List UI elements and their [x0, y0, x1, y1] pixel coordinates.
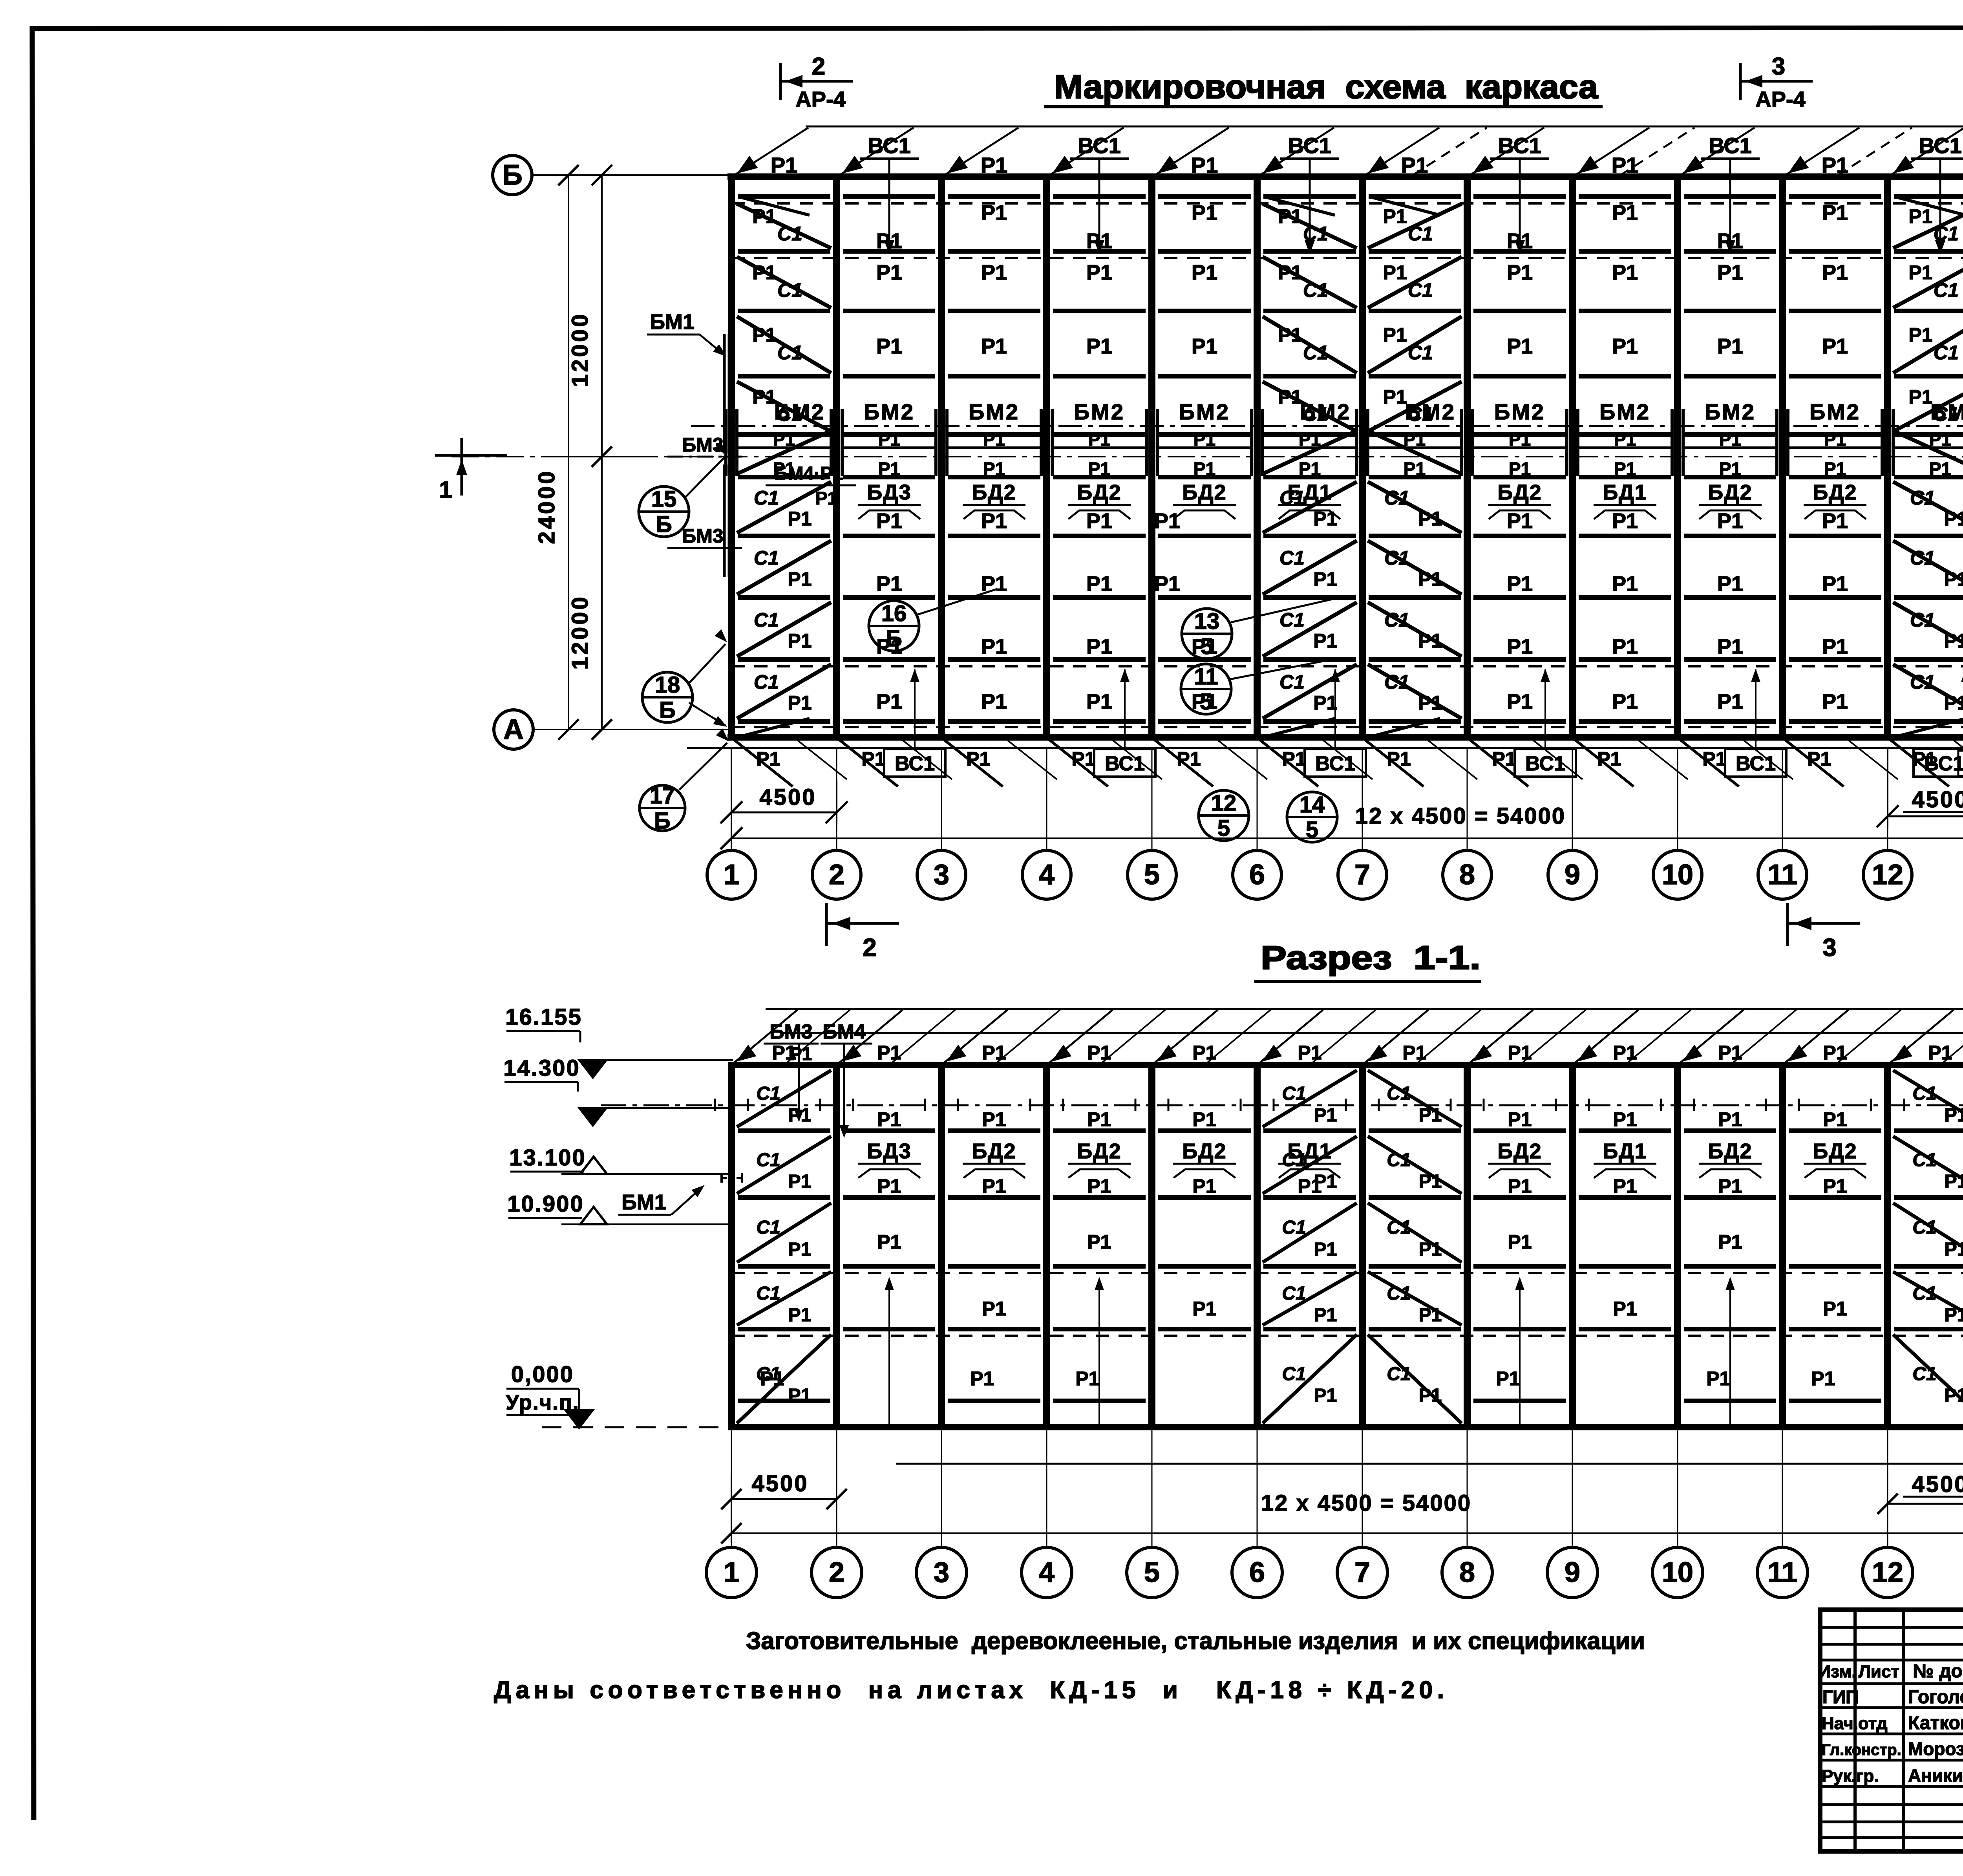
svg-text:БД2: БД2	[1813, 1139, 1857, 1163]
svg-text:ВС1: ВС1	[1315, 752, 1355, 775]
svg-text:7: 7	[1354, 1557, 1370, 1588]
svg-text:Р1: Р1	[1419, 1239, 1442, 1260]
svg-text:Р1: Р1	[1313, 630, 1337, 652]
svg-text:С1: С1	[1384, 547, 1409, 569]
svg-text:Р1: Р1	[1822, 201, 1848, 225]
svg-text:Р1: Р1	[1418, 692, 1442, 714]
svg-text:С1: С1	[1408, 279, 1433, 301]
svg-text:Гоголев: Гоголев	[1908, 1687, 1963, 1708]
svg-text:8: 8	[1459, 1557, 1475, 1588]
svg-text:Р1: Р1	[1507, 261, 1533, 284]
svg-text:БМ2: БМ2	[1179, 399, 1230, 424]
svg-text:Р1: Р1	[1404, 429, 1426, 450]
svg-text:Р1: Р1	[1087, 1175, 1111, 1197]
svg-text:Р1: Р1	[1507, 335, 1533, 358]
svg-text:БД2: БД2	[972, 1139, 1016, 1163]
svg-text:Р1: Р1	[1945, 1385, 1963, 1406]
svg-text:Р1: Р1	[1509, 459, 1531, 479]
svg-text:С1: С1	[1279, 671, 1305, 693]
svg-text:С1: С1	[1384, 487, 1409, 509]
svg-text:БД3: БД3	[867, 481, 911, 504]
svg-text:Р1: Р1	[983, 459, 1005, 479]
svg-text:Р1: Р1	[1419, 1305, 1442, 1326]
svg-text:Р1: Р1	[1419, 1105, 1442, 1126]
svg-text:Р1: Р1	[1706, 1368, 1730, 1390]
svg-text:С1: С1	[754, 671, 779, 693]
svg-text:17: 17	[650, 783, 675, 808]
svg-text:С1: С1	[1387, 1364, 1411, 1384]
svg-text:Р1: Р1	[1192, 1042, 1216, 1064]
svg-text:А: А	[503, 714, 524, 745]
svg-text:ВС1: ВС1	[1078, 133, 1121, 158]
svg-text:Р1: Р1	[1614, 429, 1636, 450]
svg-text:Р1: Р1	[1719, 429, 1741, 450]
svg-text:4500: 4500	[1912, 1472, 1963, 1497]
svg-text:ВС1: ВС1	[1709, 133, 1752, 158]
svg-text:С1: С1	[1408, 223, 1433, 245]
svg-text:Р1: Р1	[1192, 1108, 1216, 1130]
svg-text:Р1: Р1	[1612, 261, 1638, 284]
svg-text:С1: С1	[1384, 609, 1409, 631]
svg-text:Р1: Р1	[1313, 568, 1337, 590]
svg-text:15: 15	[651, 486, 677, 512]
svg-text:Р1: Р1	[1908, 386, 1932, 408]
svg-text:4500: 4500	[759, 784, 816, 810]
svg-text:Р1: Р1	[1718, 1042, 1742, 1064]
svg-text:ВС1: ВС1	[1105, 752, 1145, 775]
svg-text:Р1: Р1	[1508, 1231, 1532, 1253]
svg-text:С1: С1	[1934, 279, 1959, 301]
svg-text:С1: С1	[1934, 223, 1959, 245]
svg-text:Р1: Р1	[1419, 1385, 1442, 1406]
svg-text:С1: С1	[1303, 342, 1328, 364]
svg-text:2: 2	[863, 933, 877, 962]
svg-text:Р1: Р1	[1508, 1108, 1532, 1130]
svg-text:Р1: Р1	[752, 324, 776, 346]
svg-text:Р1: Р1	[1192, 335, 1217, 358]
svg-text:Р1: Р1	[876, 229, 902, 253]
svg-text:БМ2: БМ2	[1705, 399, 1756, 424]
svg-text:Р1: Р1	[1944, 630, 1963, 652]
svg-text:С1: С1	[1282, 1364, 1306, 1384]
svg-text:Р1: Р1	[788, 568, 812, 590]
svg-text:Р1: Р1	[1719, 459, 1741, 479]
svg-text:Р1: Р1	[1929, 459, 1951, 479]
svg-text:БМ3: БМ3	[769, 1020, 813, 1043]
svg-text:Р1: Р1	[1086, 509, 1112, 533]
svg-text:БД3: БД3	[867, 1139, 911, 1163]
svg-text:Р1: Р1	[1824, 459, 1846, 479]
svg-text:Р1: Р1	[1387, 748, 1411, 770]
svg-text:Р1: Р1	[878, 459, 900, 479]
svg-text:3: 3	[934, 1557, 949, 1588]
svg-text:БД1: БД1	[1603, 481, 1647, 504]
svg-text:Р1: Р1	[876, 572, 902, 596]
svg-text:Р1: Р1	[1823, 1108, 1847, 1130]
svg-text:Р1: Р1	[1928, 1042, 1952, 1064]
svg-text:Р1: Р1	[1717, 690, 1743, 713]
svg-text:2: 2	[829, 1557, 844, 1588]
svg-text:С1: С1	[777, 223, 802, 245]
svg-text:8: 8	[1459, 859, 1475, 890]
svg-text:Р1: Р1	[1717, 635, 1743, 658]
svg-text:Р1: Р1	[1192, 261, 1217, 284]
svg-text:Гл.констр.: Гл.констр.	[1822, 1741, 1901, 1759]
svg-text:Р1: Р1	[1313, 692, 1337, 714]
svg-text:Р1: Р1	[752, 386, 776, 408]
svg-text:9: 9	[1565, 1557, 1580, 1588]
svg-text:БМ2: БМ2	[1494, 399, 1545, 424]
svg-text:Р1: Р1	[982, 1298, 1006, 1320]
svg-text:14: 14	[1300, 792, 1325, 817]
svg-text:3: 3	[934, 859, 949, 890]
svg-text:Нач.отд: Нач.отд	[1822, 1714, 1888, 1733]
svg-text:С1: С1	[1387, 1217, 1411, 1238]
svg-text:Р1: Р1	[1807, 748, 1831, 770]
svg-text:Р1: Р1	[1507, 690, 1533, 713]
svg-text:Р1: Р1	[1299, 459, 1321, 479]
svg-text:С1: С1	[1279, 547, 1305, 569]
svg-text:Р1: Р1	[981, 509, 1007, 533]
svg-text:Р1: Р1	[1612, 335, 1638, 358]
svg-text:БД2: БД2	[1077, 1139, 1121, 1163]
svg-text:Р1: Р1	[1597, 748, 1621, 770]
svg-text:11: 11	[1194, 664, 1218, 689]
svg-text:10.900: 10.900	[507, 1191, 584, 1217]
svg-text:С1: С1	[1912, 1364, 1936, 1384]
svg-text:БМ2: БМ2	[1405, 399, 1456, 424]
svg-text:3: 3	[1772, 53, 1785, 80]
svg-text:12: 12	[1872, 859, 1903, 890]
svg-text:5: 5	[1306, 817, 1318, 843]
svg-text:Р1: Р1	[861, 748, 885, 770]
svg-text:С1: С1	[1912, 1217, 1936, 1238]
svg-text:Изм.: Изм.	[1818, 1662, 1856, 1681]
svg-text:Б: Б	[654, 808, 671, 834]
svg-text:Аникин: Аникин	[1908, 1765, 1963, 1786]
svg-text:Р1: Р1	[1314, 1239, 1337, 1260]
svg-text:Р1: Р1	[1086, 261, 1112, 284]
svg-text:Р1: Р1	[1717, 261, 1743, 284]
svg-text:Р1: Р1	[1944, 508, 1963, 530]
svg-text:Р1: Р1	[1086, 335, 1112, 358]
svg-text:Р1: Р1	[1278, 261, 1302, 283]
svg-text:Б: Б	[656, 512, 672, 537]
svg-text:Заготовительные деревоклееные: Заготовительные деревоклееные, стальные …	[746, 1627, 1645, 1655]
svg-text:3: 3	[1822, 933, 1837, 962]
svg-text:Р1: Р1	[788, 508, 812, 530]
svg-text:10: 10	[1662, 1557, 1693, 1588]
svg-text:Р1: Р1	[1314, 1385, 1337, 1406]
svg-text:Р1: Р1	[982, 1042, 1006, 1064]
svg-text:Р1: Р1	[1071, 748, 1095, 770]
svg-text:12: 12	[1872, 1557, 1903, 1588]
svg-text:7: 7	[1354, 859, 1370, 890]
svg-text:БМ2: БМ2	[1074, 399, 1125, 424]
svg-text:Р1: Р1	[1383, 386, 1407, 408]
svg-text:12 х 4500 = 54000: 12 х 4500 = 54000	[1261, 1490, 1471, 1516]
svg-text:Р1: Р1	[1823, 1175, 1847, 1197]
svg-text:Р1: Р1	[876, 509, 902, 533]
svg-text:С1: С1	[1279, 609, 1305, 631]
svg-text:БД1: БД1	[1287, 481, 1332, 504]
svg-text:18: 18	[655, 672, 680, 698]
svg-text:12000: 12000	[567, 312, 593, 387]
svg-text:Р1: Р1	[1945, 1171, 1963, 1192]
svg-text:БД2: БД2	[1182, 481, 1226, 504]
svg-text:С1: С1	[1282, 1083, 1306, 1104]
svg-text:Р1: Р1	[788, 630, 812, 652]
svg-text:Р1: Р1	[1824, 429, 1846, 450]
svg-text:Р1: Р1	[1908, 324, 1932, 346]
svg-text:Разрез 1-1.: Разрез 1-1.	[1261, 939, 1480, 976]
svg-text:Р1: Р1	[1418, 508, 1442, 530]
svg-text:Р1: Р1	[1088, 429, 1110, 450]
svg-text:Р1: Р1	[1613, 1108, 1637, 1130]
svg-text:Р1: Р1	[760, 1368, 784, 1390]
svg-text:Р1: Р1	[1496, 1368, 1520, 1390]
svg-text:Р1: Р1	[1613, 1298, 1637, 1320]
svg-text:С1: С1	[1912, 1150, 1936, 1170]
svg-text:Р1: Р1	[1192, 201, 1217, 225]
svg-text:ВС1: ВС1	[1498, 133, 1541, 158]
svg-text:ВС1: ВС1	[1924, 752, 1963, 775]
svg-text:Р1: Р1	[1717, 572, 1743, 596]
svg-text:Р1: Р1	[1278, 324, 1302, 346]
svg-text:Р1: Р1	[1613, 1042, 1637, 1064]
svg-text:Р1: Р1	[1507, 509, 1533, 533]
svg-text:Р1: Р1	[981, 635, 1007, 658]
svg-text:Р1: Р1	[877, 1042, 901, 1064]
svg-text:6: 6	[1249, 1557, 1265, 1588]
svg-text:Р1: Р1	[1087, 1231, 1111, 1253]
svg-text:Р1: Р1	[1192, 1175, 1216, 1197]
svg-text:13.100: 13.100	[509, 1145, 586, 1170]
svg-text:Р1: Р1	[752, 205, 776, 227]
svg-text:БМ4·Р1: БМ4·Р1	[774, 463, 843, 484]
svg-text:БД1: БД1	[1287, 1139, 1332, 1163]
svg-text:Р1: Р1	[1086, 635, 1112, 658]
svg-text:Р1: Р1	[1418, 630, 1442, 652]
svg-text:Р1: Р1	[877, 1175, 901, 1197]
svg-text:С1: С1	[754, 609, 779, 631]
svg-text:Р1: Р1	[1507, 635, 1533, 658]
svg-text:Р1: Р1	[1944, 692, 1963, 714]
svg-text:Р1: Р1	[1822, 335, 1848, 358]
svg-text:БМ3: БМ3	[682, 434, 723, 456]
svg-text:Р1: Р1	[1945, 1105, 1963, 1126]
svg-text:24000: 24000	[534, 469, 559, 544]
svg-text:С1: С1	[1384, 671, 1409, 693]
svg-text:С1: С1	[1387, 1283, 1411, 1304]
svg-text:16: 16	[881, 601, 907, 626]
svg-text:Р1: Р1	[1299, 429, 1321, 450]
svg-text:Р1: Р1	[1908, 261, 1932, 283]
svg-text:БМ3: БМ3	[682, 525, 723, 547]
svg-text:2: 2	[812, 53, 825, 80]
svg-text:Р1: Р1	[1278, 205, 1302, 227]
svg-text:Р1: Р1	[1075, 1368, 1099, 1390]
svg-text:5: 5	[1144, 859, 1160, 890]
svg-text:С1: С1	[754, 547, 779, 569]
svg-text:Р1: Р1	[981, 261, 1007, 284]
svg-text:Р1: Р1	[1508, 1175, 1532, 1197]
svg-text:БД1: БД1	[1603, 1139, 1647, 1163]
svg-text:С1: С1	[1910, 671, 1935, 693]
svg-text:ВС1: ВС1	[868, 133, 911, 158]
svg-text:Р1: Р1	[1086, 229, 1112, 253]
svg-text:АР-4: АР-4	[795, 87, 846, 112]
svg-text:5: 5	[1217, 815, 1230, 841]
svg-text:4500: 4500	[1912, 787, 1963, 812]
svg-text:Р1: Р1	[788, 692, 812, 714]
svg-text:Р1: Р1	[1314, 1105, 1337, 1126]
svg-text:Рук.гр.: Рук.гр.	[1822, 1766, 1879, 1786]
svg-text:БМ2: БМ2	[774, 399, 825, 424]
svg-text:Р1: Р1	[1822, 509, 1848, 533]
svg-text:Р1: Р1	[1717, 509, 1743, 533]
svg-text:Р1: Р1	[1612, 201, 1638, 225]
svg-text:Р1: Р1	[1718, 1175, 1742, 1197]
svg-text:Р1: Р1	[1492, 748, 1516, 770]
svg-text:Р1: Р1	[1508, 1042, 1532, 1064]
svg-text:БМ2: БМ2	[1300, 399, 1351, 424]
svg-text:БД2: БД2	[1497, 1139, 1542, 1163]
svg-text:Р1: Р1	[1822, 572, 1848, 596]
svg-text:Р1: Р1	[788, 1385, 812, 1406]
svg-text:Р1: Р1	[1945, 1305, 1963, 1326]
svg-text:0,000: 0,000	[511, 1362, 574, 1387]
svg-text:БМ1: БМ1	[621, 1190, 666, 1214]
svg-text:5: 5	[1201, 634, 1213, 659]
svg-text:Р1: Р1	[983, 429, 1005, 450]
svg-text:С1: С1	[756, 1283, 780, 1304]
svg-text:4: 4	[1039, 859, 1055, 890]
svg-text:Р1: Р1	[1282, 748, 1306, 770]
svg-text:БД2: БД2	[1708, 481, 1752, 504]
svg-text:Р1: Р1	[876, 261, 902, 284]
svg-text:Р1: Р1	[1087, 1108, 1111, 1130]
svg-text:Р1: Р1	[1086, 690, 1112, 713]
svg-text:С1: С1	[756, 1083, 780, 1104]
svg-text:ВС1: ВС1	[1525, 752, 1565, 775]
svg-text:1: 1	[439, 477, 452, 503]
svg-text:С1: С1	[754, 487, 779, 509]
svg-text:Р1: Р1	[1822, 635, 1848, 658]
svg-text:1: 1	[724, 859, 739, 890]
svg-text:1: 1	[724, 1557, 739, 1588]
svg-text:Р1: Р1	[981, 201, 1007, 225]
svg-text:10: 10	[1662, 859, 1693, 890]
svg-text:С1: С1	[1387, 1150, 1411, 1170]
svg-text:12000: 12000	[567, 594, 593, 669]
svg-text:Р1: Р1	[1908, 205, 1932, 227]
svg-text:Б: Б	[886, 626, 902, 651]
svg-text:Р1: Р1	[981, 690, 1007, 713]
svg-text:Р1: Р1	[1402, 1042, 1426, 1064]
svg-text:БМ2: БМ2	[1930, 399, 1963, 424]
svg-text:11: 11	[1767, 859, 1797, 890]
svg-text:12: 12	[1211, 790, 1237, 816]
svg-text:6: 6	[1249, 859, 1265, 890]
svg-text:С1: С1	[1387, 1083, 1411, 1104]
svg-text:Р1: Р1	[1718, 1108, 1742, 1130]
svg-text:Р1: Р1	[1383, 324, 1407, 346]
svg-text:С1: С1	[1282, 1217, 1306, 1238]
svg-text:С1: С1	[1912, 1083, 1936, 1104]
svg-text:5: 5	[1144, 1557, 1160, 1588]
svg-text:Р1: Р1	[877, 1231, 901, 1253]
svg-text:БМ2: БМ2	[1809, 399, 1861, 424]
svg-text:Р1: Р1	[756, 748, 780, 770]
svg-text:Р1: Р1	[752, 261, 776, 283]
svg-text:Р1: Р1	[966, 748, 990, 770]
svg-text:Р1: Р1	[1822, 690, 1848, 713]
svg-text:16.155: 16.155	[505, 1004, 582, 1030]
svg-text:Р1: Р1	[1612, 690, 1638, 713]
svg-text:ВС1: ВС1	[1288, 133, 1331, 158]
svg-text:Р1: Р1	[1945, 1239, 1963, 1260]
svg-text:5: 5	[1200, 689, 1212, 715]
svg-text:Р1: Р1	[1822, 261, 1848, 284]
svg-text:БД2: БД2	[1708, 1139, 1752, 1163]
svg-text:Р1: Р1	[1612, 635, 1638, 658]
svg-text:С1: С1	[1303, 223, 1328, 245]
svg-text:Р1: Р1	[1086, 572, 1112, 596]
svg-text:Р1: Р1	[878, 429, 900, 450]
svg-text:Р1: Р1	[1717, 229, 1743, 253]
svg-text:12 х 4500 = 54000: 12 х 4500 = 54000	[1355, 803, 1566, 829]
svg-text:С1: С1	[777, 342, 802, 364]
svg-text:Р1: Р1	[982, 1108, 1006, 1130]
svg-text:Р1: Р1	[1298, 1042, 1321, 1064]
svg-text:Морозова: Морозова	[1908, 1739, 1963, 1759]
svg-text:Р1: Р1	[788, 1239, 812, 1260]
svg-text:Маркировочная схема каркаса: Маркировочная схема каркаса	[1054, 68, 1598, 105]
svg-text:С1: С1	[1408, 342, 1433, 364]
svg-text:С1: С1	[756, 1150, 780, 1170]
svg-text:С1: С1	[1912, 1283, 1936, 1304]
svg-text:Р1: Р1	[1613, 1175, 1637, 1197]
svg-text:Р1: Р1	[1154, 572, 1180, 596]
svg-text:Р1: Р1	[788, 1305, 812, 1326]
svg-text:Р1: Р1	[1418, 568, 1442, 590]
svg-text:Р1: Р1	[1087, 1042, 1111, 1064]
svg-text:Р1: Р1	[815, 488, 837, 508]
svg-text:С1: С1	[1910, 487, 1935, 509]
svg-text:Р1: Р1	[1944, 568, 1963, 590]
svg-text:Р1: Р1	[1811, 1368, 1835, 1390]
svg-text:С1: С1	[1910, 609, 1935, 631]
svg-text:Р1: Р1	[1154, 509, 1180, 533]
svg-text:АР-4: АР-4	[1755, 87, 1806, 112]
svg-text:Р1: Р1	[1612, 572, 1638, 596]
svg-text:Даны соответственно на листах: Даны соответственно на листах КД-15 и КД…	[494, 1677, 1444, 1704]
svg-text:С1: С1	[1910, 547, 1935, 569]
svg-text:Р1: Р1	[1614, 459, 1636, 479]
svg-text:Р1: Р1	[981, 335, 1007, 358]
svg-text:Р1: Р1	[788, 1105, 812, 1126]
svg-text:Р1: Р1	[1612, 509, 1638, 533]
svg-text:БД2: БД2	[1497, 481, 1542, 504]
svg-text:Р1: Р1	[1278, 386, 1302, 408]
svg-text:Р1: Р1	[1509, 429, 1531, 450]
svg-text:Р1: Р1	[1314, 1305, 1337, 1326]
svg-text:БМ2: БМ2	[969, 399, 1020, 424]
svg-text:Б: Б	[502, 159, 523, 191]
svg-text:Р1: Р1	[1419, 1171, 1442, 1192]
svg-text:Р1: Р1	[1718, 1231, 1742, 1253]
